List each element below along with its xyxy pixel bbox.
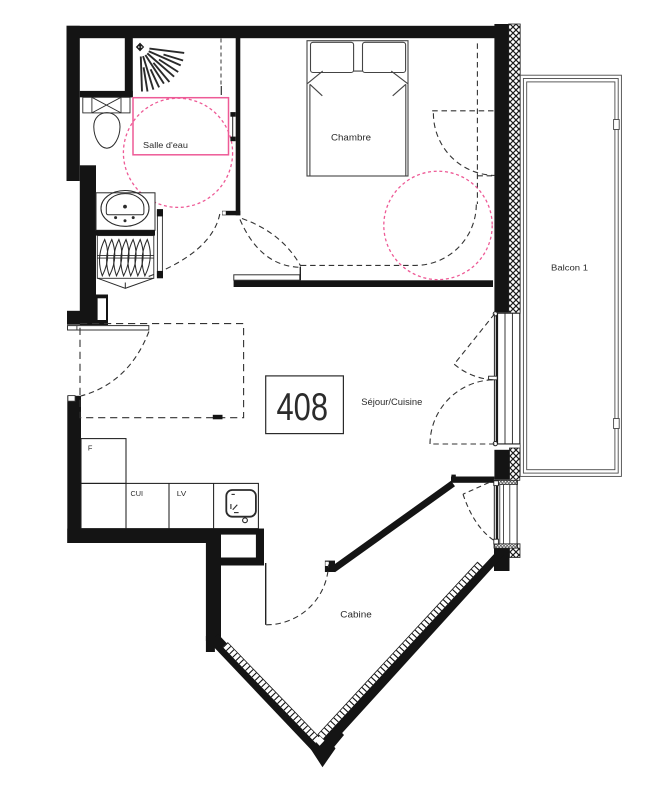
svg-text:Chambre: Chambre	[331, 133, 371, 143]
svg-text:F: F	[88, 444, 93, 453]
svg-text:408: 408	[277, 386, 329, 429]
svg-text:Balcon 1: Balcon 1	[551, 263, 588, 273]
svg-text:CUI: CUI	[131, 489, 144, 498]
svg-text:Cabine: Cabine	[340, 609, 372, 619]
svg-text:LV: LV	[177, 489, 187, 498]
svg-text:Salle d'eau: Salle d'eau	[143, 140, 188, 150]
svg-text:Séjour/Cuisine: Séjour/Cuisine	[361, 397, 422, 407]
